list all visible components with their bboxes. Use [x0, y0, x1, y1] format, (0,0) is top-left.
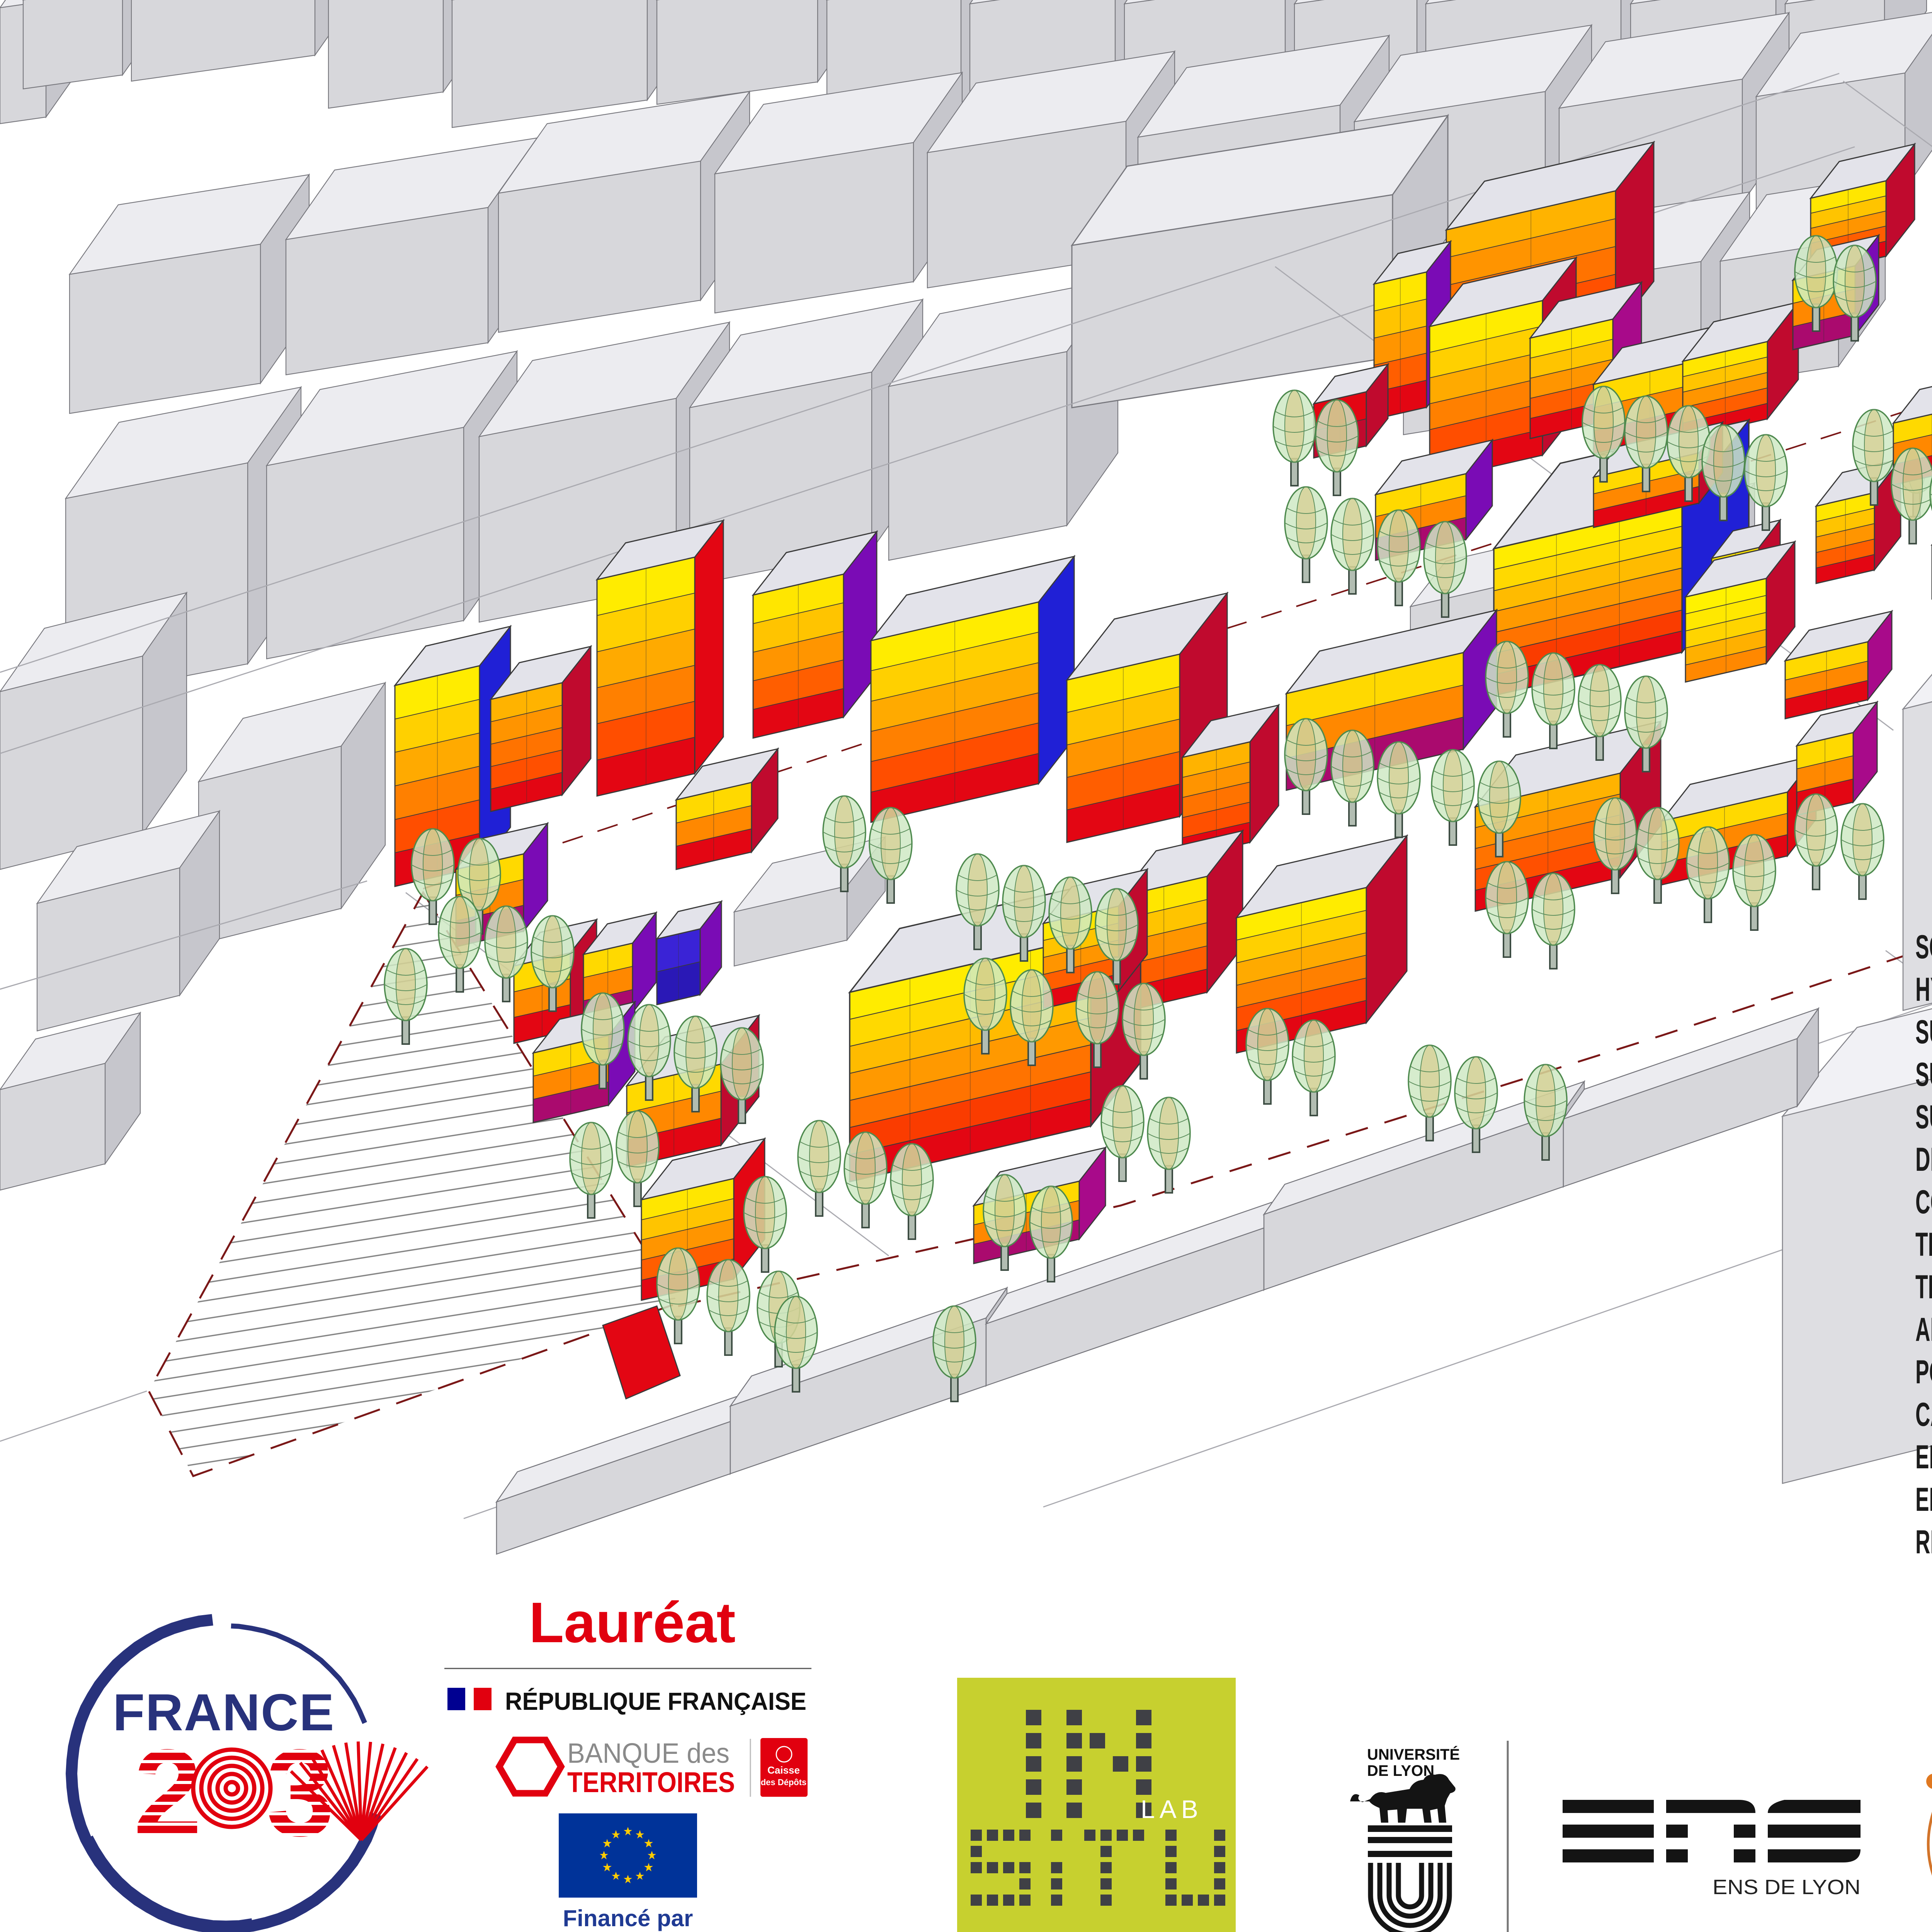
svg-text:TERRITOIRES: TERRITOIRES: [567, 1766, 735, 1798]
svg-text:CAPTURE DE CARBONE : 8048.05 K: CAPTURE DE CARBONE : 8048.05 KG CO2/AN: [1915, 1396, 1932, 1433]
svg-text:DENSITÉ BÂTIE (SHOB/PARC. CONS: DENSITÉ BÂTIE (SHOB/PARC. CONSTRUCTIBLE)…: [1915, 1141, 1932, 1178]
svg-text:SURFACE PARCELLE CONSTRUCTIBLE: SURFACE PARCELLE CONSTRUCTIBLE : 29376 M…: [1915, 1056, 1932, 1093]
svg-text:ENS DE LYON: ENS DE LYON: [1713, 1876, 1861, 1899]
svg-text:Caisse: Caisse: [767, 1764, 800, 1776]
svg-text:Lauréat: Lauréat: [529, 1591, 736, 1655]
svg-text:SCÉNARIO 0: SCÉNARIO 0: [1915, 929, 1932, 966]
svg-text:DE LYON: DE LYON: [1367, 1762, 1434, 1779]
svg-text:ENERGIE SOLAIRE (PÉRIODE DE CH: ENERGIE SOLAIRE (PÉRIODE DE CHAUFFE):293…: [1915, 1481, 1932, 1518]
svg-text:ENSOLEILLEMENT MOYEN SUD : 4.8: ENSOLEILLEMENT MOYEN SUD : 4.87H: [1915, 1439, 1932, 1476]
svg-text:SURFACE BÂTIE : 37242.6 M² SHO: SURFACE BÂTIE : 37242.6 M² SHOB: [1915, 1098, 1932, 1136]
svg-text:BANQUE des: BANQUE des: [567, 1738, 730, 1769]
svg-text:HYPOTHÈSES : CELLULE DE BASE 2: HYPOTHÈSES : CELLULE DE BASE 24 X12 - RÈ…: [1915, 971, 1932, 1008]
svg-text:Financé par: Financé par: [563, 1905, 693, 1931]
svg-text:TRAME VERTE / CBS (COEFFICIENT: TRAME VERTE / CBS (COEFFICIENT BIOTOP): …: [1915, 1226, 1932, 1263]
svg-text:RÉDUCTION DES ÉMISSIONS DE CO2: RÉDUCTION DES ÉMISSIONS DE CO2 [CHAUFFAG…: [1915, 1524, 1932, 1561]
svg-text:RÉPUBLIQUE FRANÇAISE: RÉPUBLIQUE FRANÇAISE: [505, 1687, 806, 1715]
svg-text:des Dépôts: des Dépôts: [761, 1777, 807, 1787]
svg-text:ARBRES DE HAUTE TIGE PLANTÉS :: ARBRES DE HAUTE TIGE PLANTÉS : 111: [1915, 1311, 1932, 1348]
svg-text:POTENTIEL ÉNERGIE SOLAIRE TOIT: POTENTIEL ÉNERGIE SOLAIRE TOITURE: 400.2…: [1915, 1354, 1932, 1391]
svg-text:LAB: LAB: [1141, 1795, 1203, 1823]
svg-text:COMPACITÉ : 0.49: COMPACITÉ : 0.49: [1915, 1184, 1932, 1221]
svg-text:TRAME BLEUE / EAUX DE TOITURE: TRAME BLEUE / EAUX DE TOITURE RÉUTILISAB…: [1915, 1269, 1932, 1306]
svg-text:UNIVERSITÉ: UNIVERSITÉ: [1367, 1746, 1460, 1763]
svg-text:SURFACE PARCELLE : 39744 M²: SURFACE PARCELLE : 39744 M²: [1915, 1014, 1932, 1051]
